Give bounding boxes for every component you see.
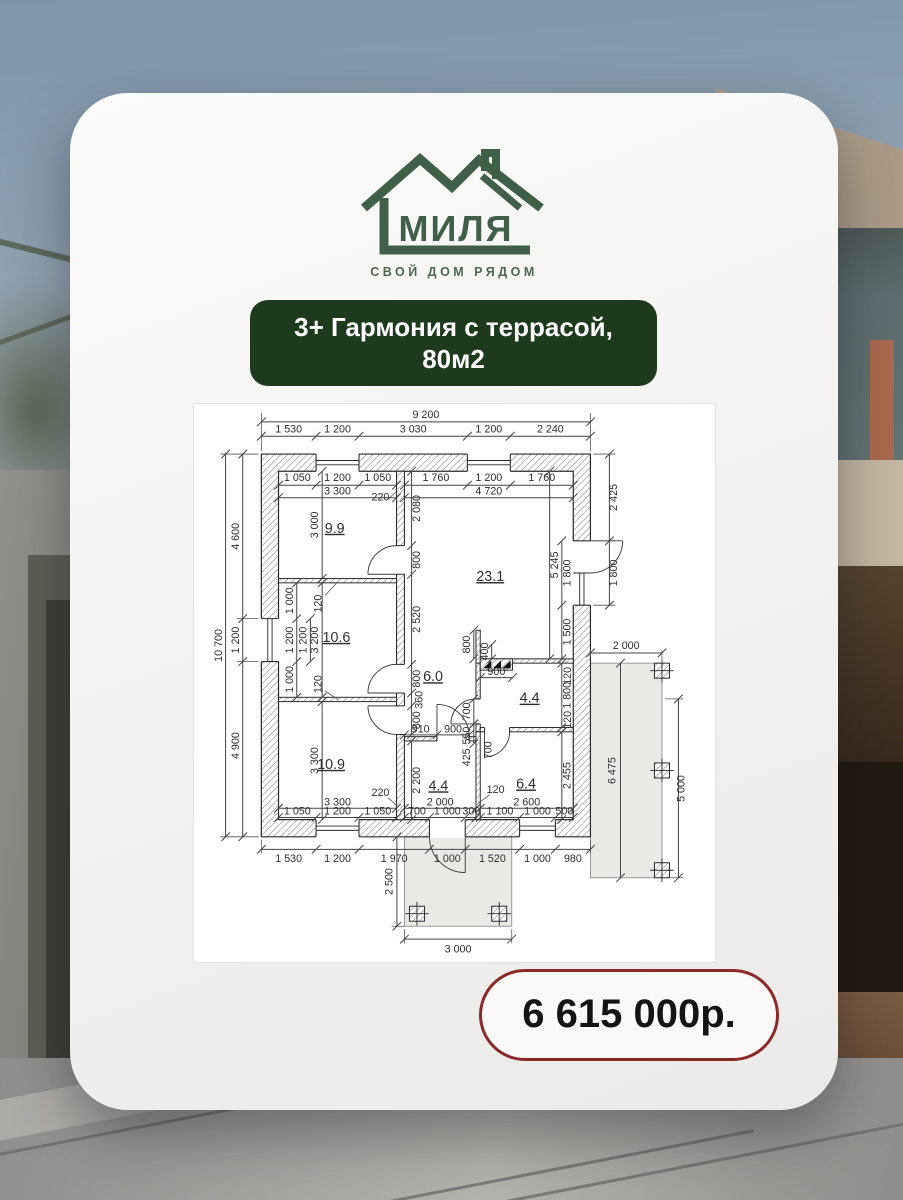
svg-text:300: 300 xyxy=(462,806,480,818)
svg-text:3 000: 3 000 xyxy=(445,943,472,955)
room-10.6: 10.6 xyxy=(323,630,351,646)
svg-text:120: 120 xyxy=(487,784,505,796)
svg-text:1 530: 1 530 xyxy=(275,423,302,435)
svg-text:1 200: 1 200 xyxy=(230,627,242,654)
svg-text:1 000: 1 000 xyxy=(434,806,461,818)
svg-text:1 000: 1 000 xyxy=(524,853,551,865)
plan-title-banner: 3+ Гармония с террасой, 80м2 xyxy=(250,300,657,386)
svg-text:1 200: 1 200 xyxy=(324,472,351,484)
promo-card: МИЛЯ СВОЙ ДОМ РЯДОМ 3+ Гармония с террас… xyxy=(70,93,838,1110)
svg-text:500: 500 xyxy=(555,806,573,818)
svg-text:4 600: 4 600 xyxy=(230,523,242,550)
brand-logo: МИЛЯ xyxy=(354,145,554,265)
svg-text:550: 550 xyxy=(461,727,473,745)
svg-text:4 720: 4 720 xyxy=(475,485,502,497)
svg-text:2 520: 2 520 xyxy=(411,606,423,633)
room-9.9: 9.9 xyxy=(325,521,345,537)
svg-text:1 200: 1 200 xyxy=(475,472,502,484)
svg-text:1 100: 1 100 xyxy=(487,806,514,818)
svg-text:1 000: 1 000 xyxy=(284,666,296,693)
svg-text:800: 800 xyxy=(411,670,423,688)
svg-text:3 200: 3 200 xyxy=(309,627,321,654)
svg-text:1 800: 1 800 xyxy=(608,560,620,587)
svg-text:800: 800 xyxy=(411,711,423,729)
svg-text:2 500: 2 500 xyxy=(383,868,395,895)
room-4.4: 4.4 xyxy=(428,778,448,794)
terrace xyxy=(590,659,673,882)
room-6.4: 6.4 xyxy=(516,777,536,793)
svg-text:9 200: 9 200 xyxy=(412,409,439,421)
svg-text:1 800: 1 800 xyxy=(561,560,573,587)
svg-text:980: 980 xyxy=(564,853,582,865)
svg-text:800: 800 xyxy=(411,551,423,569)
svg-text:2 455: 2 455 xyxy=(561,762,573,789)
svg-text:1 050: 1 050 xyxy=(284,472,311,484)
svg-text:1 000: 1 000 xyxy=(434,853,461,865)
svg-text:5 245: 5 245 xyxy=(549,552,561,579)
svg-text:3 030: 3 030 xyxy=(400,423,427,435)
svg-text:700: 700 xyxy=(482,741,494,759)
svg-text:1 520: 1 520 xyxy=(479,853,506,865)
svg-text:1 050: 1 050 xyxy=(284,806,311,818)
svg-text:220: 220 xyxy=(372,492,390,504)
room-labels: 9.9 10.6 10.9 23.1 6.0 4.4 4.4 6.4 xyxy=(317,521,539,795)
svg-text:5 000: 5 000 xyxy=(675,775,687,802)
floor-plan-drawing: 9 200 1 530 1 200 3 030 1 200 2 240 1 05… xyxy=(194,404,715,962)
svg-text:1 200: 1 200 xyxy=(475,423,502,435)
svg-text:700: 700 xyxy=(408,806,426,818)
room-4.4-bath: 4.4 xyxy=(520,691,540,707)
svg-text:1 200: 1 200 xyxy=(297,627,309,654)
svg-text:120: 120 xyxy=(562,711,574,729)
floor-plan: 9 200 1 530 1 200 3 030 1 200 2 240 1 05… xyxy=(193,403,716,963)
svg-text:1 200: 1 200 xyxy=(324,806,351,818)
entrance-porch xyxy=(404,837,511,926)
brand-name: МИЛЯ xyxy=(399,208,514,249)
svg-text:1 200: 1 200 xyxy=(324,853,351,865)
svg-text:1 200: 1 200 xyxy=(284,627,296,654)
svg-text:1 000: 1 000 xyxy=(284,587,296,614)
svg-text:120: 120 xyxy=(562,667,574,685)
svg-text:2 080: 2 080 xyxy=(411,495,423,522)
house-wall-band xyxy=(838,460,903,566)
svg-text:3 000: 3 000 xyxy=(309,511,321,538)
svg-text:1 760: 1 760 xyxy=(422,472,449,484)
svg-text:1 760: 1 760 xyxy=(528,472,555,484)
svg-text:1 000: 1 000 xyxy=(524,806,551,818)
svg-text:3 300: 3 300 xyxy=(324,485,351,497)
room-10.9: 10.9 xyxy=(317,757,345,773)
house-dark-band xyxy=(838,566,903,762)
svg-text:700: 700 xyxy=(461,702,473,720)
svg-text:2 000: 2 000 xyxy=(613,640,640,652)
svg-text:2 200: 2 200 xyxy=(411,767,423,794)
room-6.0: 6.0 xyxy=(423,669,443,685)
house-terracotta-strip xyxy=(870,340,894,463)
svg-text:1 050: 1 050 xyxy=(364,806,391,818)
room-23.1: 23.1 xyxy=(476,569,504,585)
house-shadow-band xyxy=(838,762,903,992)
plan-title-line2: 80м2 xyxy=(250,343,657,376)
svg-text:120: 120 xyxy=(312,595,324,613)
svg-text:1 970: 1 970 xyxy=(381,853,408,865)
svg-text:900: 900 xyxy=(487,666,505,678)
brand-tagline: СВОЙ ДОМ РЯДОМ xyxy=(70,265,838,279)
svg-text:2 240: 2 240 xyxy=(537,423,564,435)
svg-text:1 800: 1 800 xyxy=(561,682,573,709)
svg-text:220: 220 xyxy=(372,787,390,799)
svg-text:360: 360 xyxy=(413,691,425,709)
house-wood-band xyxy=(838,992,903,1062)
svg-text:1 500: 1 500 xyxy=(561,619,573,646)
svg-text:1 200: 1 200 xyxy=(324,423,351,435)
svg-text:2 425: 2 425 xyxy=(608,484,620,511)
svg-text:10 700: 10 700 xyxy=(213,629,225,662)
svg-text:4 900: 4 900 xyxy=(230,732,242,759)
svg-text:1 530: 1 530 xyxy=(275,853,302,865)
svg-text:900: 900 xyxy=(444,723,462,735)
svg-text:120: 120 xyxy=(312,675,324,693)
svg-text:400: 400 xyxy=(479,643,491,661)
svg-text:800: 800 xyxy=(461,636,473,654)
svg-text:1 050: 1 050 xyxy=(364,472,391,484)
plan-title-line1: 3+ Гармония с террасой, xyxy=(250,311,657,344)
price-badge: 6 615 000р. xyxy=(479,969,779,1061)
svg-text:425: 425 xyxy=(461,748,473,766)
svg-text:6 475: 6 475 xyxy=(606,757,618,784)
